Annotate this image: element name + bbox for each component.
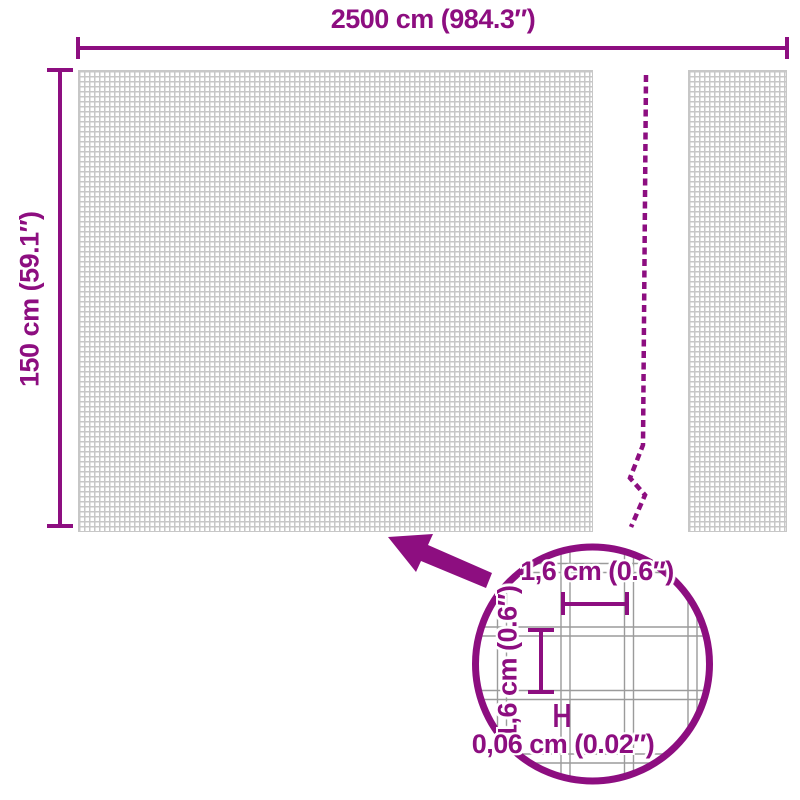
zoom-arrow-icon xyxy=(388,534,492,588)
break-line xyxy=(630,75,646,527)
diagram-graphics xyxy=(0,0,800,800)
product-dimension-diagram: 2500 cm (984.3″) 150 cm (59.1″) 1,6 cm (… xyxy=(0,0,800,800)
